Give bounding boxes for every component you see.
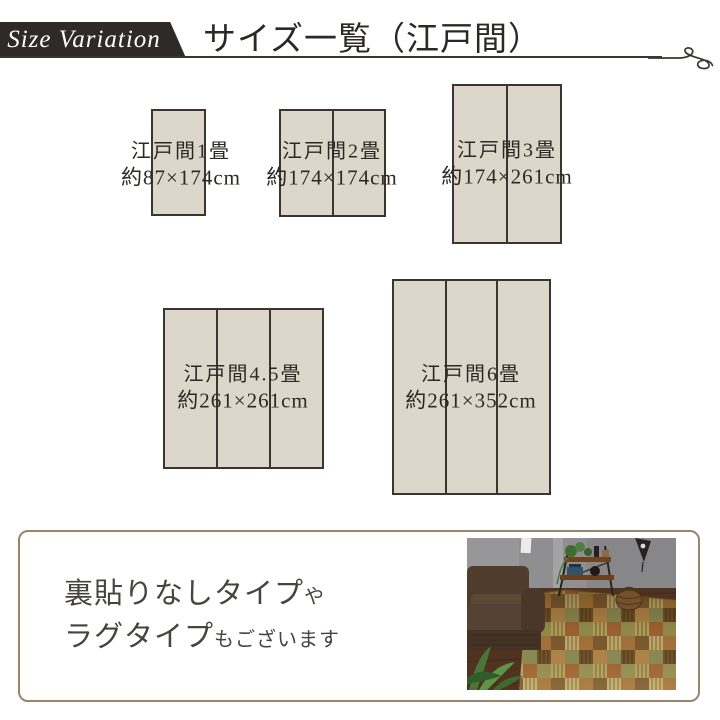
footer-note-text: 裏貼りなしタイプや ラグタイプもございます: [64, 575, 340, 661]
size-label: 江戸間3畳 約174×261cm: [441, 139, 573, 190]
ribbon-label: Size Variation: [7, 26, 161, 54]
title-underline: [0, 56, 662, 58]
footer-note-line1: 裏貼りなしタイプや: [64, 575, 340, 618]
size-name: 江戸間2畳: [266, 140, 398, 165]
footer-note-line2: ラグタイプもございます: [64, 618, 340, 661]
room-photo: [467, 538, 676, 690]
calligraphic-flourish-icon: [648, 40, 714, 78]
size-dimensions: 約87×174cm: [121, 165, 241, 191]
size-label: 江戸間4.5畳 約261×261cm: [177, 363, 309, 414]
page-title: サイズ一覧（江戸間）: [203, 21, 542, 59]
size-name: 江戸間6畳: [405, 363, 537, 388]
size-name: 江戸間3畳: [441, 139, 573, 164]
size-dimensions: 約174×174cm: [266, 165, 398, 191]
section-ribbon: Size Variation: [0, 22, 186, 58]
size-name: 江戸間1畳: [121, 140, 241, 165]
size-label: 江戸間1畳 約87×174cm: [121, 140, 241, 191]
size-label: 江戸間6畳 約261×352cm: [405, 363, 537, 414]
size-dimensions: 約261×352cm: [405, 388, 537, 414]
size-dimensions: 約174×261cm: [441, 164, 573, 190]
size-label: 江戸間2畳 約174×174cm: [266, 140, 398, 191]
size-name: 江戸間4.5畳: [177, 363, 309, 388]
size-dimensions: 約261×261cm: [177, 388, 309, 414]
